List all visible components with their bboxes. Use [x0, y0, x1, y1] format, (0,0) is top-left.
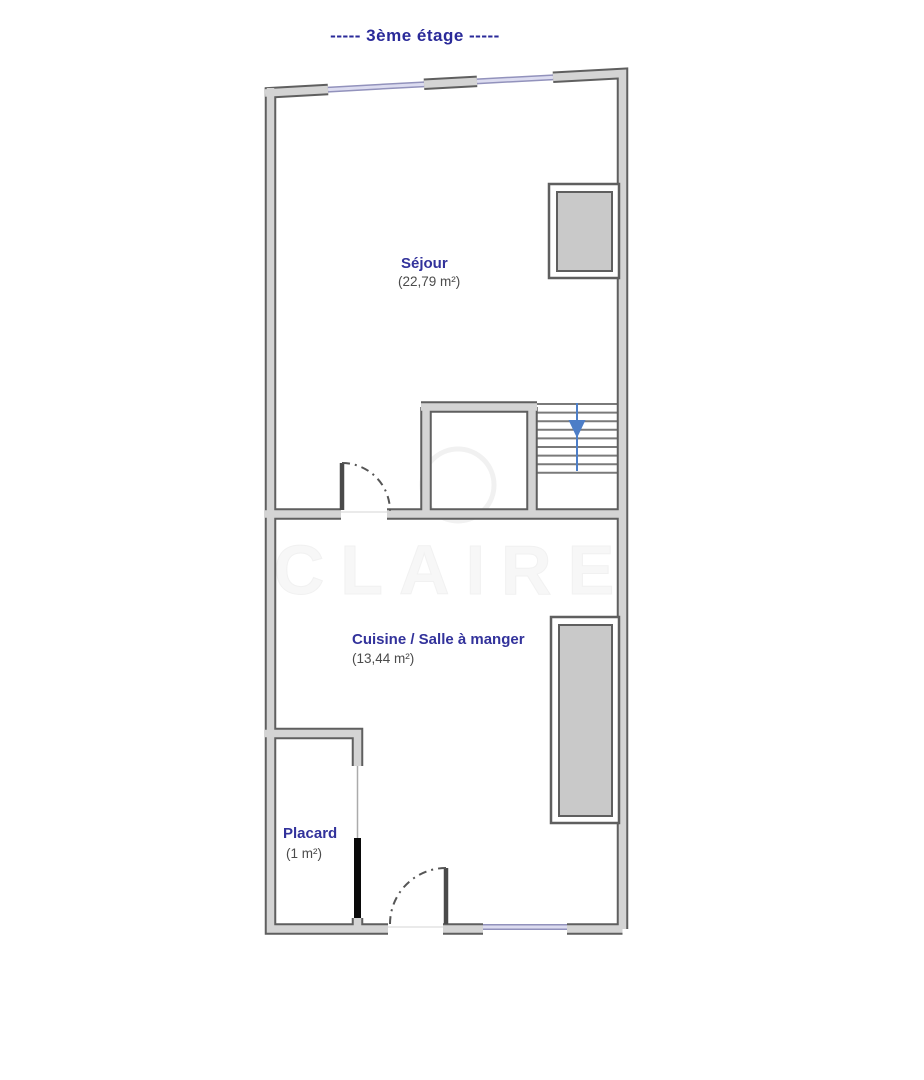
room-label-placard: Placard — [283, 825, 337, 843]
door-swing-arc — [390, 868, 446, 924]
room-area-cuisine: (13,44 m²) — [352, 650, 414, 667]
floor-plan-page: CLAIRE — [0, 0, 924, 1080]
room-area-placard: (1 m²) — [286, 845, 322, 862]
room-area-sejour: (22,79 m²) — [398, 273, 460, 290]
door-swing-arc — [342, 463, 390, 511]
room-label-sejour: Séjour — [401, 255, 448, 273]
duct-top — [549, 184, 619, 278]
duct-kitchen — [551, 617, 619, 823]
door-entry — [390, 868, 446, 924]
room-label-cuisine: Cuisine / Salle à manger — [352, 631, 525, 649]
floor-plan-drawing: CLAIRE — [0, 0, 924, 1080]
watermark-text: CLAIRE — [274, 531, 631, 609]
door-sejour — [342, 463, 390, 511]
floor-title: ----- 3ème étage ----- — [0, 26, 830, 46]
